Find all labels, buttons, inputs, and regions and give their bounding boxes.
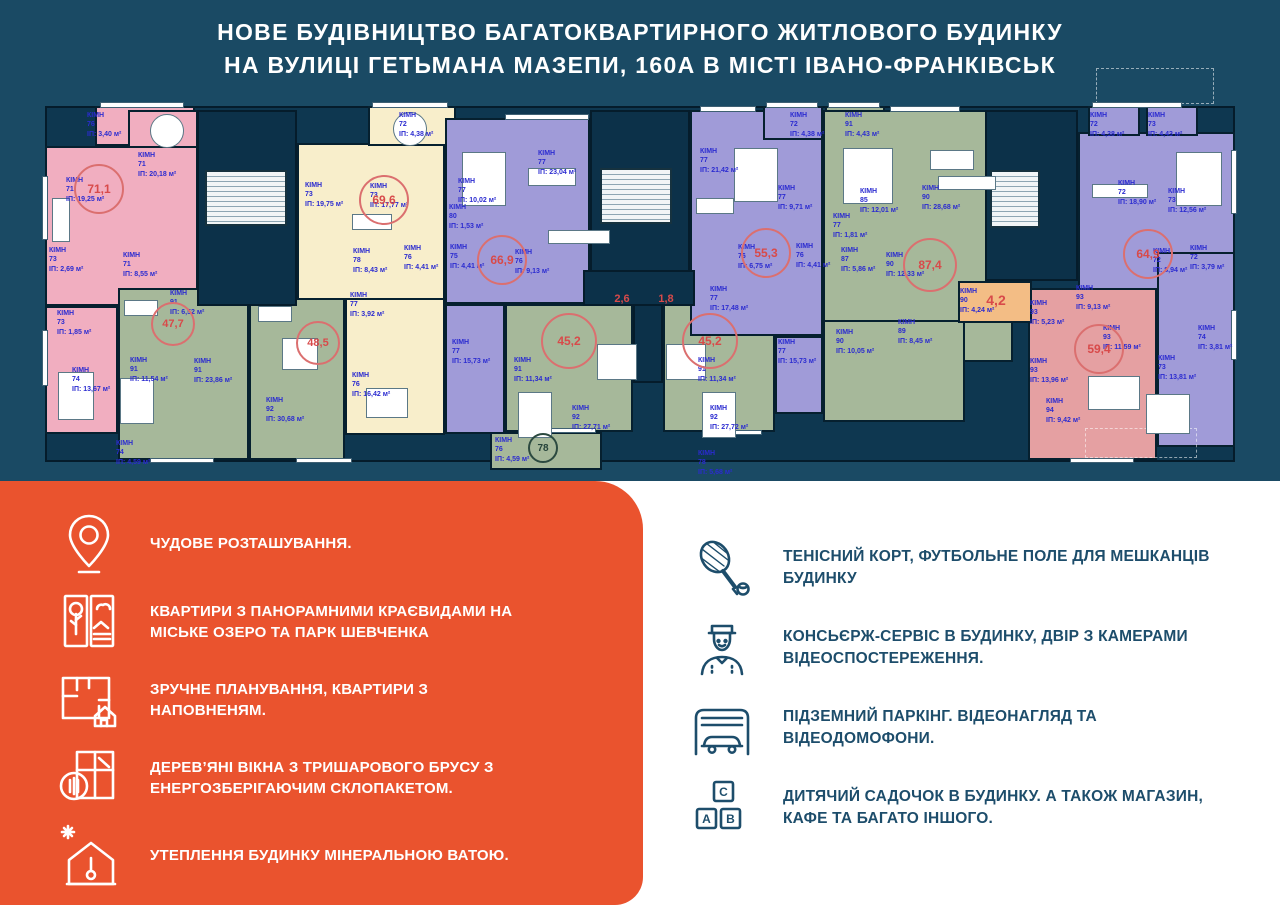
feature-text: ЗРУЧНЕ ПЛАНУВАННЯ, КВАРТИРИ З НАПОВНЕНЯМ… [150, 679, 530, 722]
feature-item: КОНСЬЄРЖ-СЕРВІС В БУДИНКУ, ДВІР З КАМЕРА… [689, 615, 1244, 681]
terrace-outline [1096, 68, 1214, 104]
location-pin-icon [56, 511, 122, 577]
furniture [734, 148, 778, 202]
window-strip [700, 106, 756, 112]
concierge-icon [689, 615, 755, 681]
room-label: КІМН 90 ІП: 28,68 м² [922, 184, 960, 212]
area-badge: 66,9 [477, 235, 527, 285]
feature-item: ДЕРЕВ’ЯНІ ВІКНА З ТРИШАРОВОГО БРУСУ З ЕН… [56, 745, 585, 811]
room-label: КІМН 91 ІП: 11,34 м² [514, 356, 552, 384]
room-label: КІМН 91 ІП: 4,43 м² [845, 111, 879, 139]
furniture [930, 150, 974, 170]
room-label: КІМН 72 ІП: 18,90 м² [1118, 179, 1156, 207]
feature-item: ПІДЗЕМНИЙ ПАРКІНГ. ВІДЕОНАГЛЯД ТА ВІДЕОД… [689, 695, 1244, 761]
room-label: КІМН 74 ІП: 3,81 м² [1198, 324, 1232, 352]
area-badge: 64,9 [1123, 229, 1173, 279]
area-badge: 87,4 [903, 238, 957, 292]
features-panel-right: ТЕНІСНИЙ КОРТ, ФУТБОЛЬНЕ ПОЛЕ ДЛЯ МЕШКАН… [643, 481, 1280, 905]
room-label: КІМН 72 ІП: 4,38 м² [1090, 111, 1124, 139]
room-label: КІМН 94 ІП: 9,42 м² [1046, 397, 1080, 425]
furniture [548, 230, 610, 244]
area-badge: 55,3 [741, 228, 791, 278]
plan-section: НОВЕ БУДІВНИЦТВО БАГАТОКВАРТИРНОГО ЖИТЛО… [0, 0, 1280, 481]
window-strip [828, 102, 880, 108]
window-strip [766, 102, 818, 108]
area-badge: 78 [528, 433, 558, 463]
feature-list-right: ТЕНІСНИЙ КОРТ, ФУТБОЛЬНЕ ПОЛЕ ДЛЯ МЕШКАН… [689, 535, 1244, 841]
furniture [1146, 394, 1190, 434]
window-strip [42, 176, 48, 240]
area-badge: 71,1 [74, 164, 124, 214]
room-label: КІМН 78 ІП: 8,43 м² [353, 247, 387, 275]
room-label: КІМН 92 ІП: 27,72 м² [710, 404, 748, 432]
window-strip [42, 330, 48, 386]
window-strip [1092, 102, 1182, 108]
furniture [258, 306, 292, 322]
feature-item: ЧУДОВЕ РОЗТАШУВАННЯ. [56, 511, 585, 577]
room-label: КІМН 76 ІП: 3,40 м² [87, 111, 121, 139]
furniture [597, 344, 637, 380]
abc-blocks-icon: CAB [689, 775, 755, 841]
room-label: КІМН 90 ІП: 10,05 м² [836, 328, 874, 356]
floor-plan-icon [56, 667, 122, 733]
feature-text: ДЕРЕВ’ЯНІ ВІКНА З ТРИШАРОВОГО БРУСУ З ЕН… [150, 757, 530, 800]
area-badge: 47,7 [151, 302, 195, 346]
feature-item: ТЕНІСНИЙ КОРТ, ФУТБОЛЬНЕ ПОЛЕ ДЛЯ МЕШКАН… [689, 535, 1244, 601]
room-label: КІМН 74 ІП: 4,59 м² [116, 439, 150, 467]
svg-text:C: C [719, 785, 728, 799]
room-label: КІМН 73 ІП: 13,81 м² [1158, 354, 1196, 382]
promo-poster: НОВЕ БУДІВНИЦТВО БАГАТОКВАРТИРНОГО ЖИТЛО… [0, 0, 1280, 905]
apartment-unit-unit-48 [249, 298, 345, 460]
area-badge: 1,8 [658, 293, 673, 305]
room-label: КІМН 85 ІП: 12,01 м² [860, 187, 898, 215]
room-label: КІМН 72 ІП: 4,38 м² [790, 111, 824, 139]
room-label: КІМН 72 ІП: 4,38 м² [399, 111, 433, 139]
area-badge: 69,6 [359, 175, 409, 225]
room-label: КІМН 80 ІП: 1,53 м² [449, 203, 483, 231]
room-label: КІМН 89 ІП: 8,45 м² [898, 318, 932, 346]
room-label: КІМН 93 ІП: 13,96 м² [1030, 357, 1068, 385]
window-strip [296, 458, 352, 463]
room-label: КІМН 76 ІП: 4,41 м² [796, 242, 830, 270]
room-label: КІМН 87 ІП: 5,86 м² [841, 246, 875, 274]
furniture [518, 392, 552, 438]
svg-text:B: B [726, 812, 735, 826]
window-strip [100, 102, 184, 108]
house-insulation-icon [56, 823, 122, 889]
furniture [696, 198, 734, 214]
area-badge: 4,2 [986, 292, 1005, 308]
room-label: КІМН 72 ІП: 3,79 м² [1190, 244, 1224, 272]
window-strip [150, 458, 214, 463]
stairs [600, 168, 672, 224]
feature-list-left: ЧУДОВЕ РОЗТАШУВАННЯ.КВАРТИРИ З ПАНОРАМНИ… [56, 511, 585, 889]
furniture [120, 378, 154, 424]
stairs [205, 170, 287, 226]
room-label: КІМН 77 ІП: 17,48 м² [710, 285, 748, 313]
wooden-window-icon [56, 745, 122, 811]
area-badge: 45,2 [682, 313, 738, 369]
svg-text:A: A [702, 812, 711, 826]
room-label: КІМН 76 ІП: 4,59 м² [495, 436, 529, 464]
room-label: КІМН 73 ІП: 19,75 м² [305, 181, 343, 209]
room-label: КІМН 76 ІП: 16,42 м² [352, 371, 390, 399]
features-section: ЧУДОВЕ РОЗТАШУВАННЯ.КВАРТИРИ З ПАНОРАМНИ… [0, 481, 1280, 905]
room-label: КІМН 71 ІП: 20,18 м² [138, 151, 176, 179]
room-label: КІМН 77 ІП: 10,02 м² [458, 177, 496, 205]
feature-text: ЧУДОВЕ РОЗТАШУВАННЯ. [150, 533, 352, 554]
area-badge: 45,2 [541, 313, 597, 369]
room-label: КІМН 73 ІП: 1,85 м² [57, 309, 91, 337]
window-strip [372, 102, 448, 108]
room-label: КІМН 74 ІП: 13,67 м² [72, 366, 110, 394]
room-label: КІМН 71 ІП: 8,55 м² [123, 251, 157, 279]
window-view-icon [56, 589, 122, 655]
furniture [150, 114, 184, 148]
room-label: КІМН 77 ІП: 3,92 м² [350, 291, 384, 319]
room-label: КІМН 78 ІП: 5,68 м² [698, 449, 732, 477]
furniture [1088, 376, 1140, 410]
room-label: КІМН 76 ІП: 4,41 м² [404, 244, 438, 272]
feature-text: ПІДЗЕМНИЙ ПАРКІНГ. ВІДЕОНАГЛЯД ТА ВІДЕОД… [783, 706, 1213, 750]
feature-text: ТЕНІСНИЙ КОРТ, ФУТБОЛЬНЕ ПОЛЕ ДЛЯ МЕШКАН… [783, 546, 1213, 590]
feature-item: CABДИТЯЧИЙ САДОЧОК В БУДИНКУ. А ТАКОЖ МА… [689, 775, 1244, 841]
feature-item: УТЕПЛЕННЯ БУДИНКУ МІНЕРАЛЬНОЮ ВАТОЮ. [56, 823, 585, 889]
stairs [990, 170, 1040, 228]
room-label: КІМН 93 ІП: 9,13 м² [1076, 284, 1110, 312]
apartment-unit-unit-66-low [445, 304, 505, 434]
room-label: КІМН 73 ІП: 12,56 м² [1168, 187, 1206, 215]
room-label: КІМН 77 ІП: 15,73 м² [452, 338, 490, 366]
feature-item: ЗРУЧНЕ ПЛАНУВАННЯ, КВАРТИРИ З НАПОВНЕНЯМ… [56, 667, 585, 733]
feature-item: КВАРТИРИ З ПАНОРАМНИМИ КРАЄВИДАМИ НА МІС… [56, 589, 585, 655]
window-strip [1231, 150, 1237, 214]
window-strip [890, 106, 960, 112]
stair-core [583, 270, 695, 306]
floor-plan: КІМН 76 ІП: 3,40 м²КІМН 71 ІП: 20,18 м²К… [0, 0, 1280, 481]
window-strip [1070, 458, 1134, 463]
window-strip [505, 114, 589, 120]
furniture [52, 198, 70, 242]
area-badge: 59,4 [1074, 324, 1124, 374]
garage-icon [689, 695, 755, 761]
room-label: КІМН 77 ІП: 15,73 м² [778, 338, 816, 366]
room-label: КІМН 92 ІП: 27,71 м² [572, 404, 610, 432]
feature-text: КОНСЬЄРЖ-СЕРВІС В БУДИНКУ, ДВІР З КАМЕРА… [783, 626, 1213, 670]
area-badge: 48,5 [296, 321, 340, 365]
room-label: КІМН 77 ІП: 21,42 м² [700, 147, 738, 175]
room-label: КІМН 92 ІП: 30,68 м² [266, 396, 304, 424]
room-label: КІМН 73 ІП: 2,69 м² [49, 246, 83, 274]
stair-core [633, 303, 663, 383]
room-label: КІМН 77 ІП: 23,04 м² [538, 149, 576, 177]
tennis-racket-icon [689, 535, 755, 601]
features-panel-left: ЧУДОВЕ РОЗТАШУВАННЯ.КВАРТИРИ З ПАНОРАМНИ… [0, 481, 643, 905]
room-label: КІМН 91 ІП: 11,54 м² [130, 356, 168, 384]
feature-text: УТЕПЛЕННЯ БУДИНКУ МІНЕРАЛЬНОЮ ВАТОЮ. [150, 845, 509, 866]
area-badge: 2,6 [614, 293, 629, 305]
feature-text: КВАРТИРИ З ПАНОРАМНИМИ КРАЄВИДАМИ НА МІС… [150, 601, 530, 644]
room-label: КІМН 77 ІП: 1,81 м² [833, 212, 867, 240]
room-label: КІМН 73 ІП: 4,43 м² [1148, 111, 1182, 139]
room-label: КІМН 93 ІП: 5,23 м² [1030, 299, 1064, 327]
room-label: КІМН 77 ІП: 9,71 м² [778, 184, 812, 212]
room-label: КІМН 91 ІП: 23,86 м² [194, 357, 232, 385]
feature-text: ДИТЯЧИЙ САДОЧОК В БУДИНКУ. А ТАКОЖ МАГАЗ… [783, 786, 1213, 830]
